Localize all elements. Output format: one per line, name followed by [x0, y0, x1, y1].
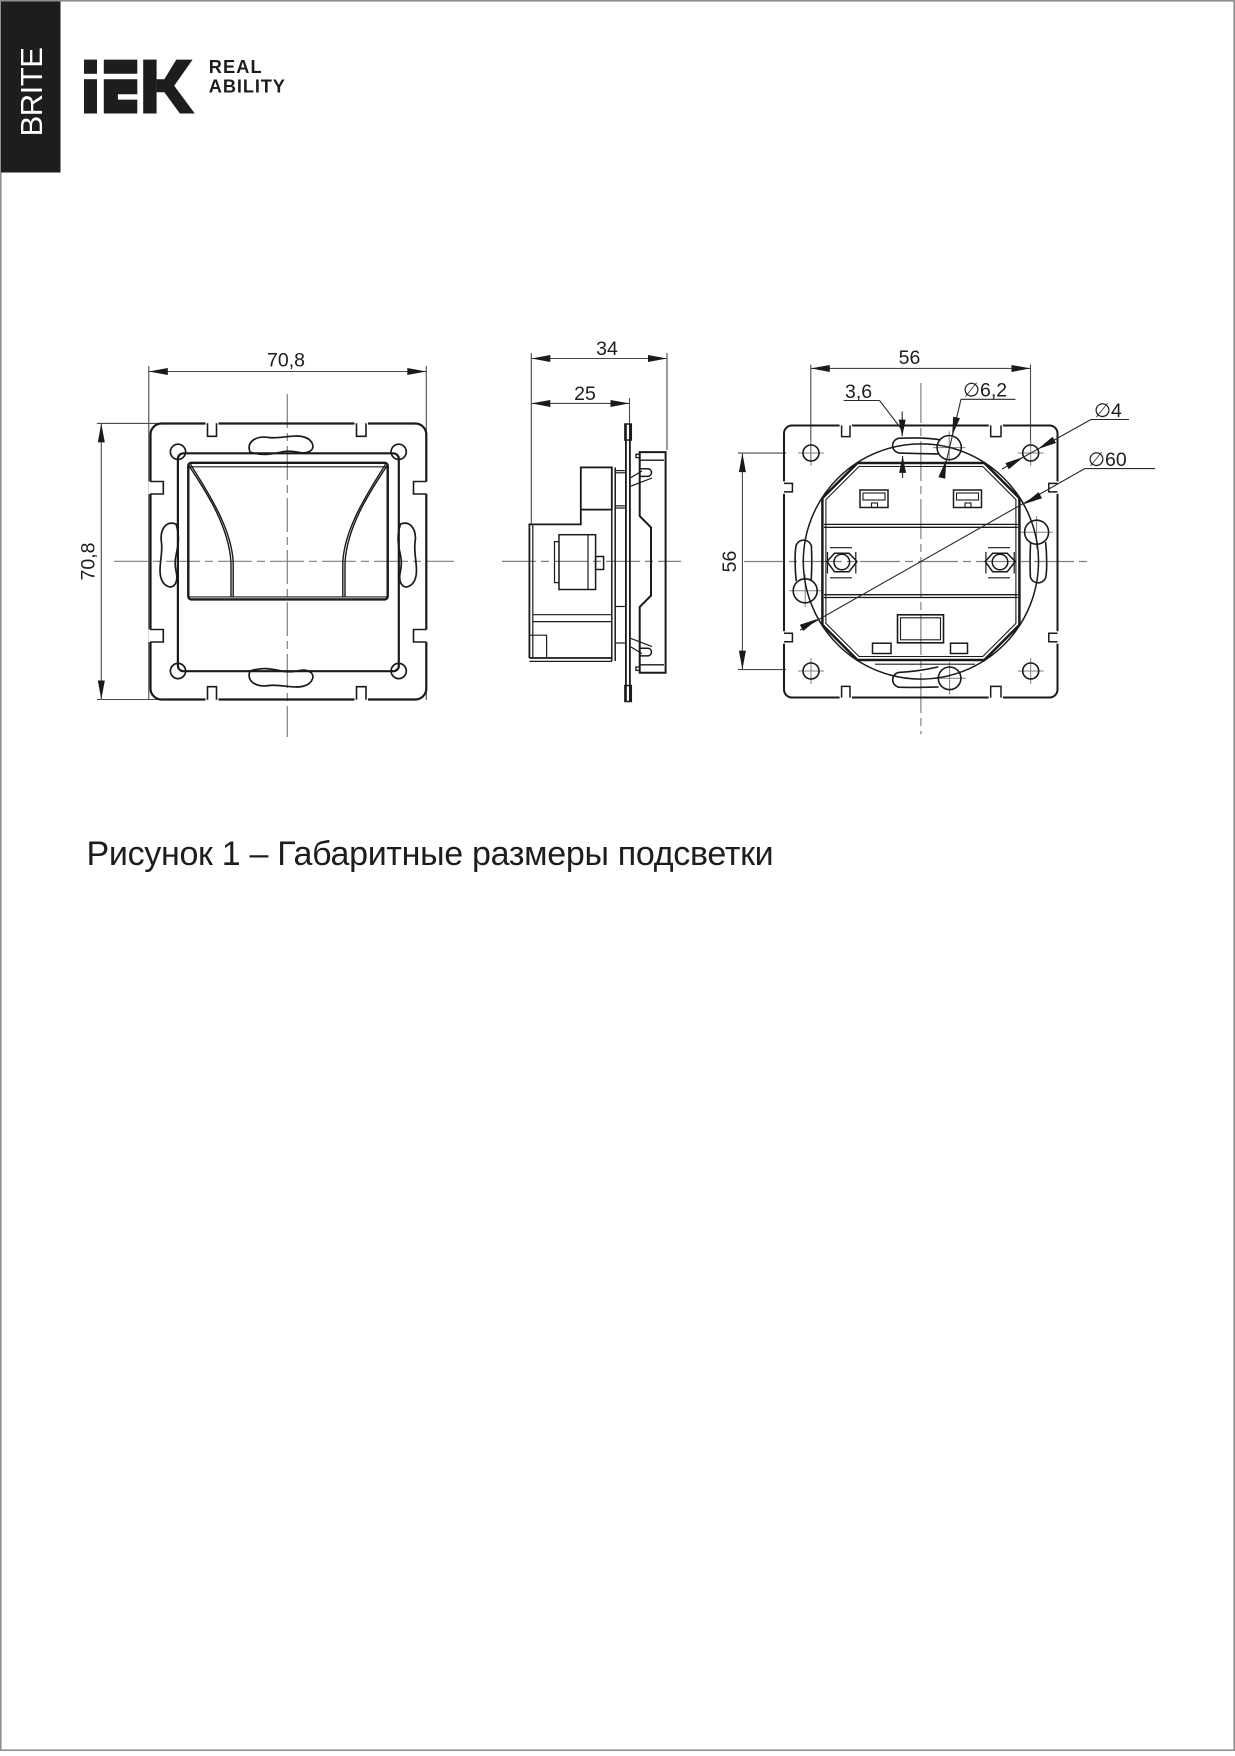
- svg-text:∅6,2: ∅6,2: [963, 380, 1007, 402]
- svg-text:25: 25: [574, 383, 596, 405]
- svg-text:70,8: 70,8: [267, 350, 305, 372]
- svg-text:56: 56: [899, 347, 921, 369]
- svg-text:70,8: 70,8: [78, 543, 100, 581]
- svg-text:∅4: ∅4: [1094, 400, 1122, 422]
- svg-text:34: 34: [596, 338, 618, 360]
- svg-text:∅60: ∅60: [1088, 449, 1127, 471]
- svg-text:ABILITY: ABILITY: [209, 76, 286, 96]
- svg-text:Рисунок 1 – Габаритные размеры: Рисунок 1 – Габаритные размеры подсветки: [87, 835, 774, 873]
- svg-text:BRITE: BRITE: [14, 48, 49, 137]
- svg-text:56: 56: [719, 551, 741, 573]
- svg-text:REAL: REAL: [209, 57, 263, 77]
- svg-text:3,6: 3,6: [845, 381, 872, 403]
